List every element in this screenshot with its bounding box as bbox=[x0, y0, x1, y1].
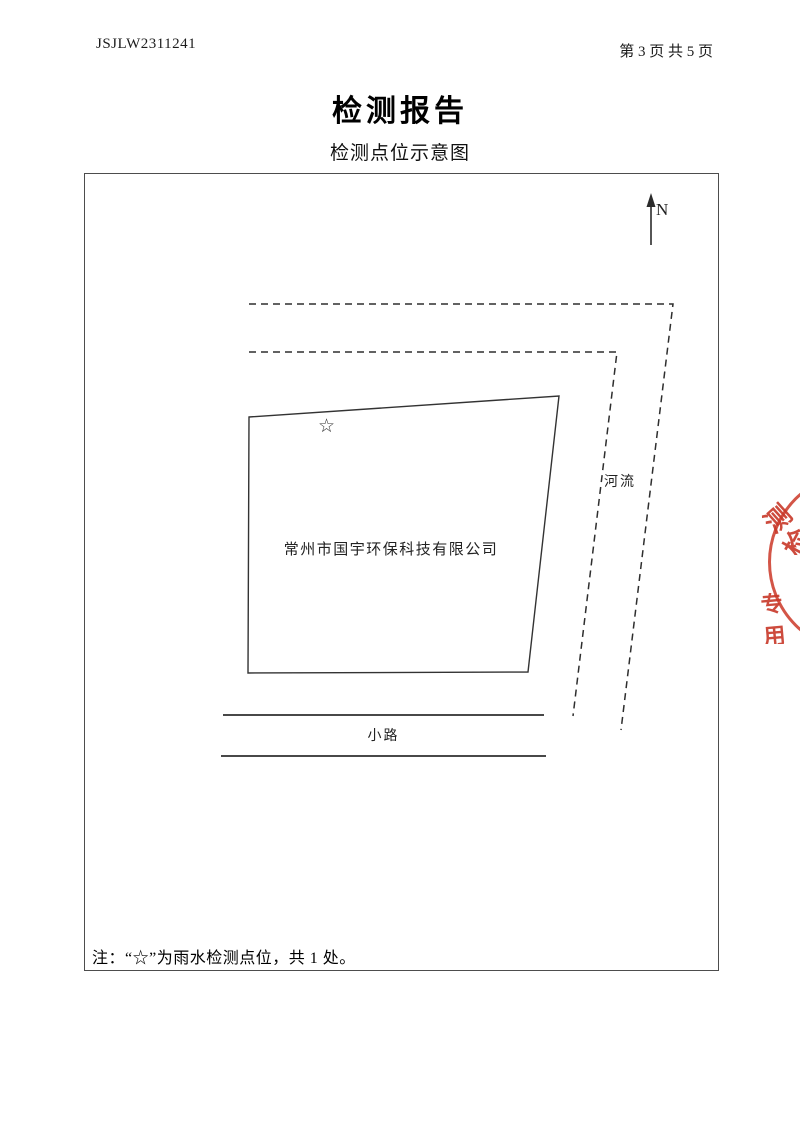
diagram-title: 检测点位示意图 bbox=[0, 138, 800, 165]
site-diagram: N 河流 ☆ 常州市国宇环保科技有限公司 小路 注：“☆”为雨水检测点位，共 1… bbox=[84, 173, 719, 971]
seal-ring-char: 测 bbox=[756, 495, 799, 540]
report-number: JSJLW2311241 bbox=[96, 36, 196, 53]
official-seal-partial: 测 检 专用 bbox=[756, 481, 800, 644]
company-name-label: 常州市国宇环保科技有限公司 bbox=[231, 538, 551, 559]
sampling-point-marker: ☆ bbox=[318, 415, 335, 438]
river-label: 河流 bbox=[604, 471, 636, 491]
seal-center-text: 专用 bbox=[759, 584, 800, 644]
site-boundary bbox=[248, 396, 559, 673]
diagram-note: 注：“☆”为雨水检测点位，共 1 处。 bbox=[92, 944, 356, 968]
seal-ring bbox=[768, 481, 800, 644]
page-title: 检测报告 bbox=[0, 86, 800, 130]
diagram-lines bbox=[85, 174, 718, 970]
seal-ring-char: 检 bbox=[774, 521, 800, 561]
river-bank-outer bbox=[249, 304, 673, 730]
north-arrow-icon bbox=[647, 193, 656, 245]
road-label: 小路 bbox=[223, 725, 544, 745]
north-label: N bbox=[656, 200, 668, 220]
report-page: { "header": { "report_no": "JSJLW2311241… bbox=[0, 0, 800, 1131]
page-indicator: 第 3 页 共 5 页 bbox=[619, 40, 713, 61]
river-bank-inner bbox=[249, 352, 617, 716]
